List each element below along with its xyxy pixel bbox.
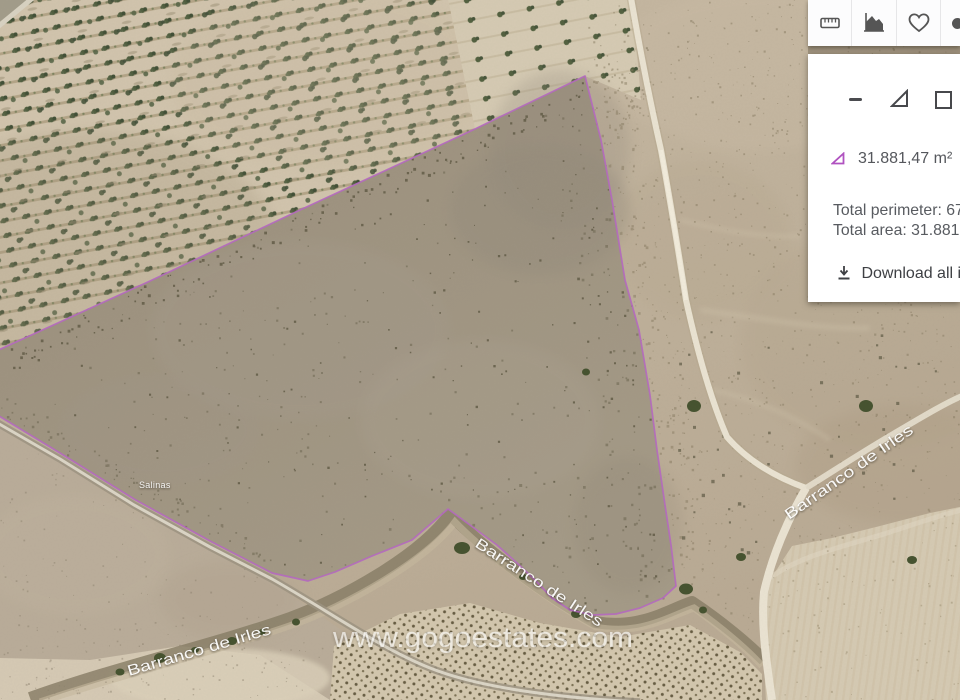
svg-text:www.gogoestates.com: www.gogoestates.com xyxy=(332,622,633,654)
svg-text:Salinas: Salinas xyxy=(139,480,171,490)
